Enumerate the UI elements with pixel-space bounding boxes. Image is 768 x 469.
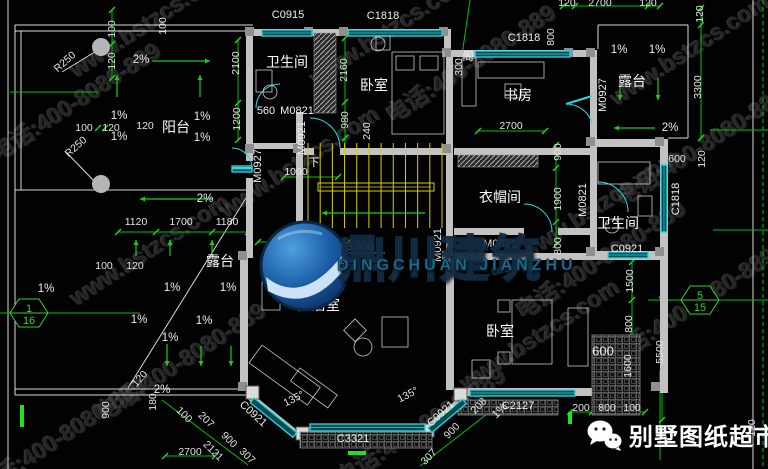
room-label: 卫生间	[266, 54, 308, 70]
dimension-line	[462, 0, 470, 55]
window-door-code: C0921	[611, 243, 643, 255]
hatched-wall	[458, 155, 538, 167]
window-door-code: C1818	[508, 32, 540, 44]
wall	[454, 148, 594, 155]
dim-label: 1180	[216, 216, 239, 228]
dim-label: 1000	[284, 166, 308, 178]
dim-label: 2121	[200, 438, 225, 463]
floor-plan-svg: 1165151001201002100120021609802409001900…	[0, 0, 768, 469]
slope-label: 1%	[131, 314, 148, 326]
bay-post	[246, 386, 259, 399]
window-door-code: M0927	[597, 78, 609, 112]
column	[92, 175, 110, 193]
slope-arrow-head	[140, 197, 145, 202]
furniture	[498, 300, 510, 312]
window-door-code: 560	[257, 105, 275, 117]
wall-post	[586, 137, 595, 146]
window-door-code: M0921	[432, 228, 444, 262]
furniture	[392, 52, 444, 134]
slope-label: 2%	[197, 193, 214, 205]
slope-label: 1%	[196, 315, 213, 327]
slope-arrow-head	[656, 95, 661, 100]
footer-brand-label: 别墅图纸超市	[629, 417, 768, 452]
door-swing-arc	[310, 118, 340, 148]
window-door-code: M0821	[280, 105, 314, 117]
dim-label: 135°	[282, 389, 307, 410]
dim-label: 2160	[338, 58, 350, 82]
dim-label: 2700	[178, 446, 202, 458]
furniture	[376, 36, 390, 50]
slope-label: 1%	[111, 131, 128, 143]
room-label: 卧室	[486, 323, 514, 339]
dim-label: 800	[623, 315, 635, 333]
slope-arrow-head	[198, 75, 203, 80]
room-label: 卫生间	[597, 215, 639, 231]
wall	[446, 56, 453, 256]
dim-label: 1600	[622, 354, 634, 378]
axis-bubble-number: 5	[697, 290, 703, 302]
wall-post	[651, 382, 660, 391]
dim-label: 240	[361, 122, 373, 140]
dim-label: 2700	[499, 120, 523, 132]
slope-arrow-head	[229, 361, 234, 366]
room-label: 阳台	[162, 119, 190, 135]
footer-brand-badge: 别墅图纸超市	[586, 417, 768, 452]
dim-label: 1700	[169, 216, 193, 228]
bay-post	[454, 388, 467, 401]
slope-label: 1%	[220, 282, 237, 294]
slope-label: 1%	[194, 132, 211, 144]
note-label: 阁	[463, 49, 474, 63]
wall-post	[339, 27, 348, 36]
dim-label: R250	[63, 134, 90, 160]
window-door-code: C2127	[502, 400, 534, 412]
slope-arrow-head	[618, 95, 623, 100]
dim-label: 1500	[624, 269, 636, 293]
window-door-code: C1818	[670, 183, 682, 215]
dim-label: 900	[552, 143, 564, 161]
dim-label: 120	[694, 5, 706, 23]
dim-label: 100	[95, 260, 113, 272]
dim-label: 900	[442, 420, 463, 441]
hatched-wall	[314, 33, 336, 113]
wall	[253, 143, 296, 149]
slope-label: 1%	[611, 44, 628, 56]
wall	[446, 258, 454, 390]
window-door-code: M0821	[483, 238, 517, 250]
dim-label: 120	[696, 150, 708, 168]
dim-label: 1120	[125, 216, 148, 228]
dim-label: 100	[157, 17, 169, 35]
door-leaf	[566, 96, 592, 104]
dim-label: 800	[545, 28, 557, 46]
furniture	[568, 308, 588, 366]
slope-arrow-head	[134, 240, 139, 245]
axis-bubble-denominator: 15	[694, 302, 706, 314]
dim-label: 120	[126, 260, 144, 272]
dim-label: 5500	[654, 340, 666, 364]
wall-post	[586, 247, 595, 256]
dim-label: 1800	[282, 232, 306, 244]
marker-dash	[348, 451, 366, 455]
dim-label: 120	[130, 368, 151, 389]
wall-post	[586, 48, 595, 57]
dim-label: 600	[668, 153, 686, 165]
dim-label: 120	[639, 0, 657, 9]
drawing-line	[338, 246, 343, 253]
door-swing-arc	[566, 104, 592, 123]
dim-label: 1200	[231, 107, 243, 131]
dim-label: 800	[598, 402, 616, 414]
slope-arrow-head	[205, 59, 210, 64]
wall-post	[442, 48, 451, 57]
slope-arrow-head	[322, 211, 327, 216]
note-label: 下	[309, 157, 320, 169]
dim-label: 900	[219, 430, 240, 451]
dim-label: 120	[136, 120, 154, 132]
slope-label: 1%	[111, 110, 128, 122]
wall	[240, 255, 248, 388]
furniture	[472, 360, 490, 378]
dimension-tick	[95, 125, 101, 131]
dim-label: 980	[339, 111, 351, 129]
dim-label: R250	[52, 49, 79, 75]
dim-label: 307	[237, 446, 258, 467]
window-door-code: C0915	[272, 9, 304, 21]
furniture	[382, 317, 408, 347]
slope-label: 1%	[38, 283, 55, 295]
window-door-code: M0927	[252, 149, 264, 183]
window-door-code: C3321	[337, 433, 369, 445]
dim-label: 3300	[692, 75, 704, 99]
wall	[454, 228, 524, 235]
slope-arrow-head	[168, 240, 173, 245]
dim-label: 900	[100, 401, 112, 419]
door-swing-arc	[524, 204, 552, 232]
axis-bubble-number: 1	[26, 303, 32, 315]
dim-label: 1900	[552, 187, 564, 211]
room-label: 卧室	[360, 77, 388, 93]
wall	[660, 255, 668, 393]
room-label: 起居室	[298, 297, 340, 313]
dim-label: 2100	[230, 51, 242, 75]
slope-label: 1%	[164, 282, 181, 294]
window-door-code: M0821	[577, 183, 589, 217]
slope-label: 2%	[154, 384, 171, 396]
furniture	[638, 196, 652, 216]
furniture	[262, 282, 280, 310]
furniture	[420, 56, 438, 70]
dim-label: 120	[558, 0, 576, 9]
wall-post	[655, 247, 664, 256]
room-label: 衣帽间	[479, 189, 521, 205]
dim-label: 120	[106, 52, 118, 70]
wall-post	[442, 144, 451, 153]
wall-post	[245, 27, 254, 36]
furniture	[512, 300, 552, 364]
slope-arrow-head	[614, 126, 619, 131]
furniture	[478, 62, 544, 78]
dim-label: 2700	[588, 0, 612, 9]
furniture	[498, 352, 510, 364]
wall-post	[238, 251, 247, 260]
floor-plan-stage: 电话:400-8080-889www.bstzcs.comwww.bstzcs.…	[0, 0, 768, 469]
marker-dash	[527, 251, 532, 271]
furniture	[354, 338, 372, 356]
window-door-code: C1818	[367, 10, 399, 22]
dim-label: 200	[572, 402, 590, 414]
slope-arrow-head	[115, 75, 120, 80]
window-door-code: M0921	[296, 121, 308, 155]
room-label: 书房	[504, 87, 532, 103]
slope-label: 2%	[133, 54, 150, 66]
furniture	[598, 162, 650, 184]
wall-post	[655, 137, 664, 146]
axis-bubble-denominator: 16	[23, 315, 35, 327]
furniture	[396, 56, 414, 70]
dim-label: 800	[552, 237, 564, 255]
marker-dash	[20, 405, 24, 427]
wall	[590, 147, 597, 253]
slope-label: 1%	[162, 332, 179, 344]
furniture	[371, 37, 385, 51]
wall	[246, 29, 253, 161]
dim-label: 600	[592, 344, 614, 359]
dim-label: 135°	[396, 385, 421, 406]
dim-label: 100	[623, 402, 641, 414]
slope-arrow-head	[165, 361, 170, 366]
door-swing-arc	[598, 182, 628, 212]
slope-label: 1%	[649, 44, 666, 56]
room-label: 露台	[618, 73, 646, 89]
room-label: 露台	[206, 253, 234, 269]
dim-label: 100	[75, 122, 93, 134]
slope-arrow-head	[199, 361, 204, 366]
slope-label: 1%	[194, 111, 211, 123]
slope-arrow-head	[210, 240, 215, 245]
dim-label: 100	[106, 20, 118, 38]
wechat-icon	[586, 418, 622, 452]
note-label: 3.600	[346, 241, 374, 253]
slope-label: 2%	[662, 122, 679, 134]
wall	[246, 178, 253, 258]
wall	[558, 228, 594, 235]
